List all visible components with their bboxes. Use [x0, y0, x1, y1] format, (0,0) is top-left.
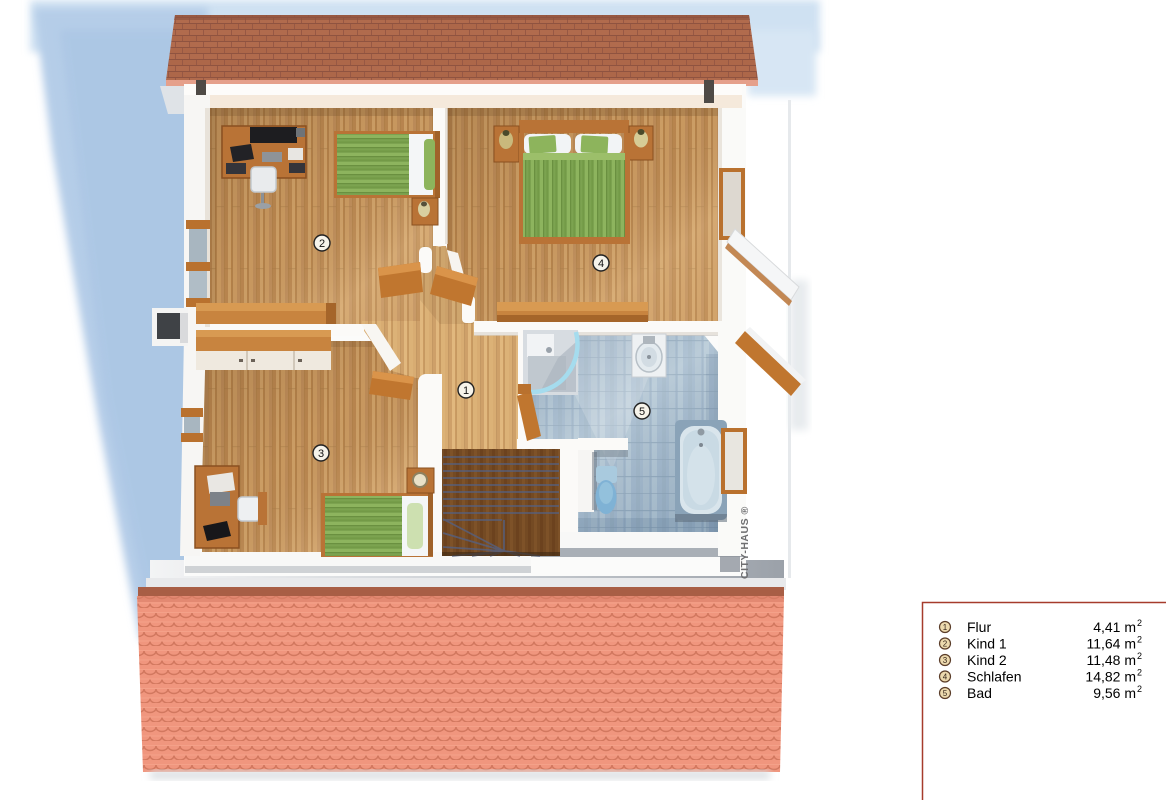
svg-text:2: 2: [943, 640, 948, 649]
svg-text:Kind 1: Kind 1: [967, 636, 1007, 652]
svg-text:Bad: Bad: [967, 685, 992, 701]
svg-text:CITY-HAUS ®: CITY-HAUS ®: [739, 506, 751, 579]
svg-text:5: 5: [943, 689, 948, 698]
svg-text:2: 2: [1137, 618, 1142, 628]
svg-text:2: 2: [1137, 635, 1142, 645]
svg-text:1: 1: [463, 385, 469, 397]
svg-text:4,41 m: 4,41 m: [1093, 619, 1136, 635]
svg-text:1: 1: [943, 623, 948, 632]
svg-text:4: 4: [598, 258, 604, 270]
svg-text:4: 4: [943, 673, 948, 682]
svg-text:2: 2: [1137, 668, 1142, 678]
svg-text:Flur: Flur: [967, 619, 991, 635]
svg-text:11,64 m: 11,64 m: [1086, 636, 1136, 652]
svg-text:3: 3: [943, 656, 948, 665]
svg-text:9,56 m: 9,56 m: [1093, 685, 1136, 701]
svg-text:11,48 m: 11,48 m: [1086, 652, 1136, 668]
svg-text:Kind 2: Kind 2: [967, 652, 1007, 668]
svg-text:5: 5: [639, 406, 645, 418]
svg-text:2: 2: [1137, 651, 1142, 661]
svg-text:2: 2: [1137, 684, 1142, 694]
svg-text:14,82 m: 14,82 m: [1085, 669, 1136, 685]
svg-text:3: 3: [318, 448, 324, 460]
svg-text:2: 2: [319, 238, 325, 250]
svg-text:Schlafen: Schlafen: [967, 669, 1021, 685]
